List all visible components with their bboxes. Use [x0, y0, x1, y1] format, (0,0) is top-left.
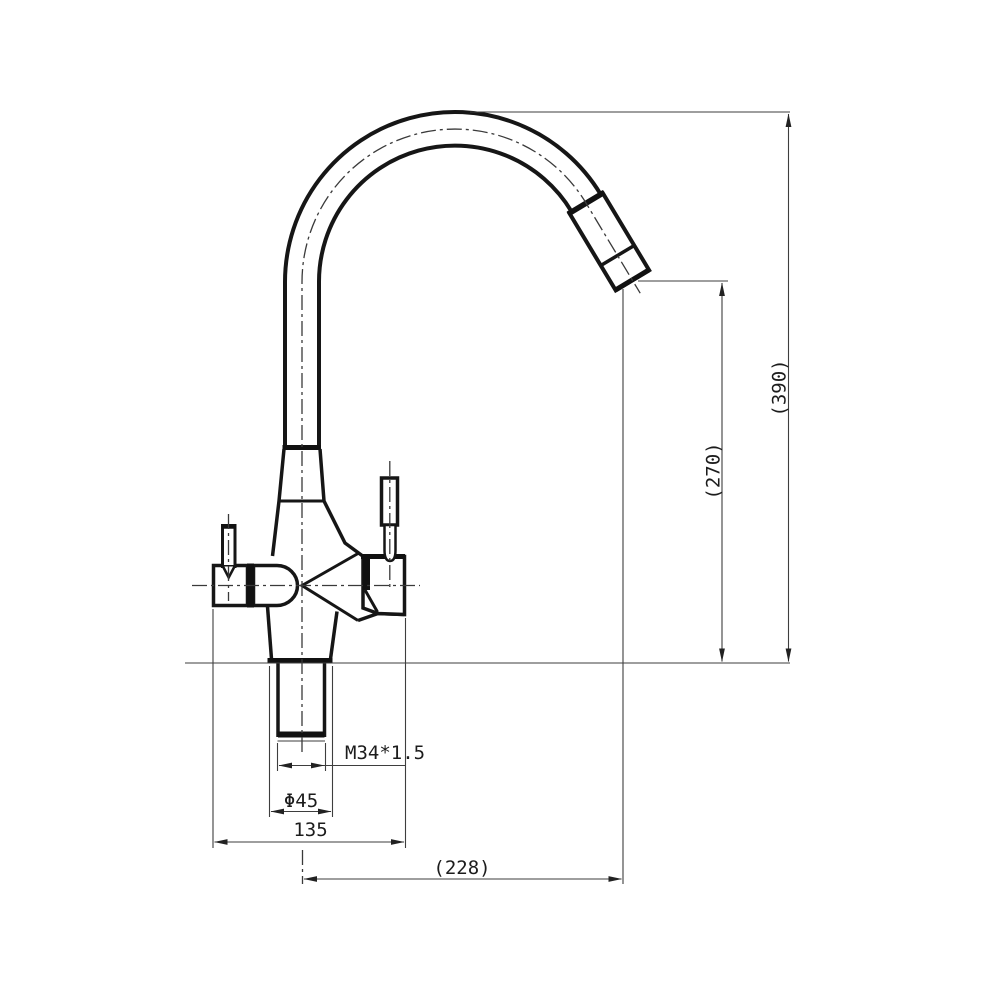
dim-label-spout-reach: (228) [433, 857, 490, 879]
dim-label-spout-height: (270) [703, 442, 725, 499]
lower-body-left-edge [268, 607, 272, 660]
drawing-sheet: (390) (270) M34*1.5 Φ45 135 (228) [0, 0, 1000, 1000]
gooseneck-outer-edge [285, 112, 601, 449]
lower-body-right-edge [331, 612, 338, 660]
dimensions: (390) (270) M34*1.5 Φ45 135 (228) [185, 112, 791, 884]
centerlines [192, 129, 640, 884]
dim-label-body-width: 135 [293, 819, 327, 841]
dim-label-flange-diameter: Φ45 [284, 790, 318, 812]
dim-label-thread-spec: M34*1.5 [345, 742, 425, 764]
column-right-edge [320, 449, 362, 556]
faucet-technical-drawing: (390) (270) M34*1.5 Φ45 135 (228) [0, 0, 1000, 1000]
body-cone-lines [302, 554, 358, 621]
gooseneck-inner-edge [319, 146, 572, 449]
dim-label-overall-height: (390) [769, 359, 791, 416]
faucet-outline [214, 112, 651, 741]
threaded-shank [278, 663, 326, 741]
